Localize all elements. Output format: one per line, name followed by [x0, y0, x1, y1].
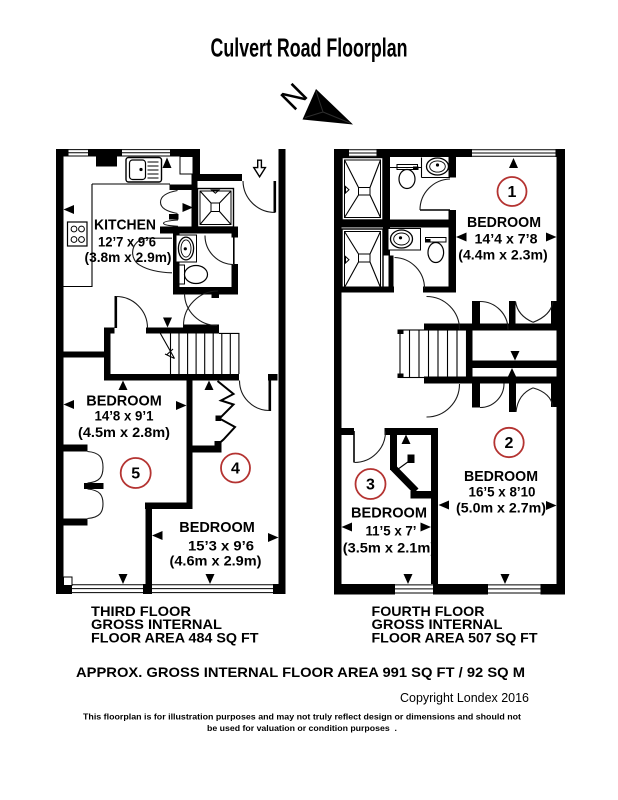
svg-text:1: 1 [508, 184, 517, 201]
svg-text:16’5 x 8’10: 16’5 x 8’10 [469, 484, 536, 500]
svg-text:KITCHEN: KITCHEN [94, 217, 156, 234]
svg-text:(3.5m x 2.1m): (3.5m x 2.1m) [343, 540, 436, 556]
svg-text:FLOOR AREA 484 SQ FT: FLOOR AREA 484 SQ FT [91, 631, 259, 646]
svg-text:(4.6m x 2.9m): (4.6m x 2.9m) [170, 553, 262, 569]
svg-text:BEDROOM: BEDROOM [467, 215, 541, 231]
svg-text:4: 4 [231, 461, 240, 478]
svg-text:14’8 x 9’1: 14’8 x 9’1 [95, 408, 154, 424]
svg-text:be used for valuation or condi: be used for valuation or condition purpo… [207, 723, 397, 733]
svg-text:BEDROOM: BEDROOM [179, 520, 255, 536]
svg-text:BEDROOM: BEDROOM [351, 506, 427, 522]
svg-text:5: 5 [131, 466, 140, 483]
svg-text:(4.4m x 2.3m): (4.4m x 2.3m) [458, 247, 548, 263]
svg-text:(5.0m x 2.7m): (5.0m x 2.7m) [456, 500, 546, 516]
svg-text:3: 3 [366, 477, 375, 494]
svg-text:(4.5m x 2.8m): (4.5m x 2.8m) [78, 424, 170, 440]
svg-text:Copyright Londex 2016: Copyright Londex 2016 [400, 690, 529, 705]
svg-text:14’4 x 7’8: 14’4 x 7’8 [475, 231, 538, 247]
svg-text:APPROX. GROSS INTERNAL FLOOR A: APPROX. GROSS INTERNAL FLOOR AREA 991 SQ… [76, 665, 525, 680]
svg-text:(3.8m x 2.9m): (3.8m x 2.9m) [85, 249, 172, 265]
svg-text:This floorplan is for illustra: This floorplan is for illustration purpo… [83, 712, 521, 722]
svg-text:2: 2 [505, 435, 514, 452]
svg-text:Culvert Road Floorplan: Culvert Road Floorplan [211, 33, 408, 63]
svg-text:FLOOR AREA 507 SQ FT: FLOOR AREA 507 SQ FT [372, 631, 539, 646]
svg-text:15’3 x 9’6: 15’3 x 9’6 [188, 538, 254, 554]
svg-text:11’5 x 7’: 11’5 x 7’ [366, 523, 417, 539]
svg-text:12’7 x 9’6: 12’7 x 9’6 [98, 234, 156, 250]
